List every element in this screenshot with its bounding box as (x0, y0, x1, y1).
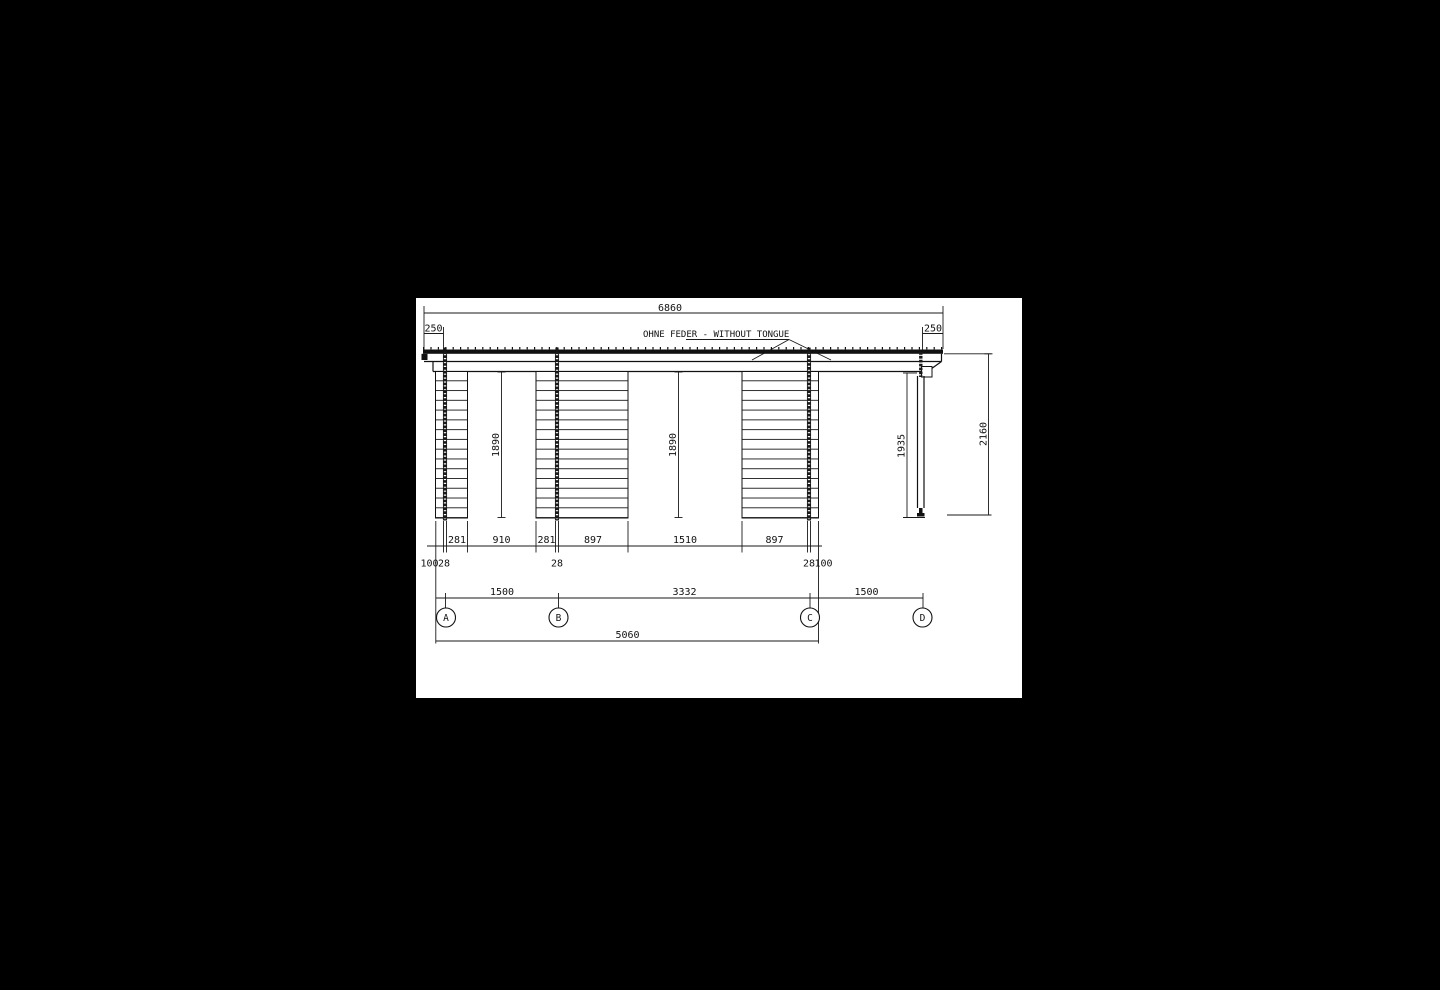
elevation-drawing: 6860 250 250 OHNE FEDER - WITHOUT TONGUE (416, 298, 1022, 698)
dim-overhang-right-label: 250 (924, 324, 942, 335)
black-background: 6860 250 250 OHNE FEDER - WITHOUT TONGUE (0, 0, 1440, 990)
axis-label-d: D (920, 613, 926, 624)
dim-chain-2: 910 (492, 535, 510, 546)
wall-panel-middle (536, 372, 628, 519)
post-d-foot-stem (919, 508, 923, 513)
dim-chain-1: 281 (448, 535, 466, 546)
beam-bracket (922, 367, 933, 378)
dim-overall-width: 6860 (424, 303, 943, 352)
dim-axis-span-1: 1500 (490, 587, 514, 598)
axis-dim-row: 1500 3332 1500 (436, 587, 923, 608)
axis-label-c: C (807, 613, 813, 624)
axis-bubbles: A B C D (437, 608, 933, 627)
dim-detail-100-right: 100 (814, 559, 832, 570)
dim-overhang-left-label: 250 (424, 324, 442, 335)
dim-axis-span-3: 1500 (854, 587, 878, 598)
drawing-sheet: 6860 250 250 OHNE FEDER - WITHOUT TONGUE (416, 298, 1022, 698)
dim-overhang-right: 250 (923, 324, 944, 352)
posts (443, 348, 924, 521)
dim-panel-height-left: 1890 (491, 372, 506, 518)
dim-chain-row: 281 910 281 897 1510 897 100 28 28 28 10… (420, 521, 832, 644)
dim-detail-28-mid: 28 (551, 559, 563, 570)
dim-chain-5: 1510 (673, 535, 697, 546)
dim-axis-span-2: 3332 (672, 587, 696, 598)
dim-axis-overall: 5060 (436, 630, 819, 641)
dim-detail-28-right: 28 (803, 559, 815, 570)
note-label: OHNE FEDER - WITHOUT TONGUE (643, 330, 789, 340)
roof-beam (422, 348, 944, 377)
dim-panel-height-mid: 1890 (668, 372, 683, 518)
axis-label-b: B (556, 613, 562, 624)
dim-panel-height-left-label: 1890 (491, 433, 502, 457)
dim-chain-3: 281 (537, 535, 555, 546)
dim-axis-overall-label: 5060 (615, 630, 639, 641)
note-without-tongue: OHNE FEDER - WITHOUT TONGUE (643, 330, 831, 360)
dim-overall-height: 2160 (944, 354, 993, 515)
roof-edge-band (423, 350, 943, 354)
post-d-foot-plate (917, 513, 925, 517)
roof-drip-edge (422, 354, 428, 360)
axis-label-a: A (443, 613, 449, 624)
beam-chamfer (931, 362, 942, 370)
dim-post-height-label: 1935 (897, 434, 908, 458)
dim-overall-width-label: 6860 (658, 303, 682, 314)
dim-panel-height-mid-label: 1890 (668, 433, 679, 457)
dim-detail-28-left: 28 (438, 559, 450, 570)
dim-chain-4: 897 (584, 535, 602, 546)
dim-chain-6: 897 (765, 535, 783, 546)
dim-overall-height-label: 2160 (979, 422, 990, 446)
dim-post-height: 1935 (897, 373, 926, 518)
wall-panel-left (436, 372, 468, 519)
dim-overhang-left: 250 (424, 324, 444, 352)
dim-detail-100-left: 100 (420, 559, 438, 570)
